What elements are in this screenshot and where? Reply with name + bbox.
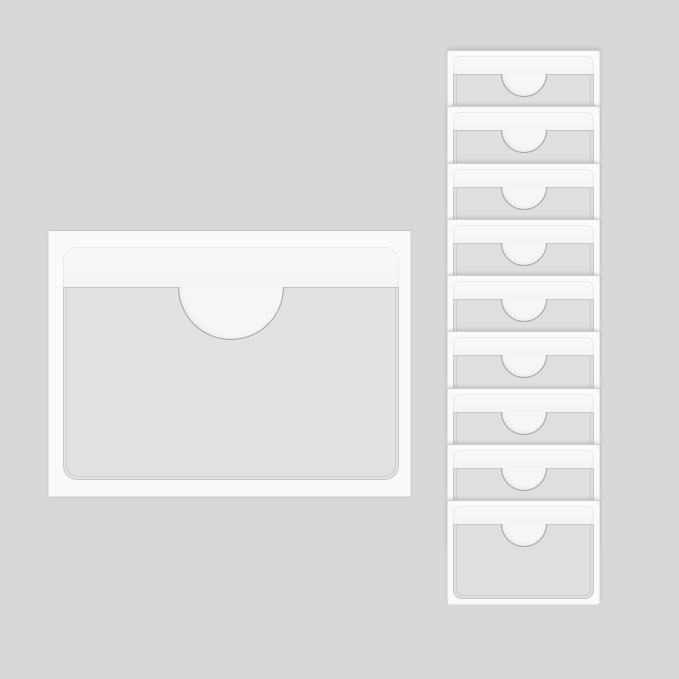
small-pocket-adhesive-band (453, 394, 594, 412)
small-pocket-adhesive-band (453, 506, 594, 524)
pocket-stack (447, 50, 600, 605)
small-pocket-adhesive-band (453, 337, 594, 355)
large-pocket-front-panel (63, 287, 399, 480)
small-pocket-adhesive-band (453, 112, 594, 130)
small-pocket-adhesive-band (453, 281, 594, 299)
large-pocket-backing-sheet (48, 230, 411, 497)
thumb-notch (501, 74, 547, 97)
thumb-notch (501, 299, 547, 322)
thumb-notch (501, 355, 547, 378)
thumb-notch (501, 243, 547, 266)
small-pocket-adhesive-band (453, 56, 594, 74)
large-pocket-adhesive-band (63, 247, 399, 287)
thumb-notch (501, 412, 547, 435)
small-pocket-backing-sheet (447, 500, 600, 605)
thumb-notch (501, 524, 547, 547)
small-pocket-adhesive-band (453, 450, 594, 468)
thumb-notch (501, 130, 547, 153)
small-pocket-front-panel (453, 524, 594, 599)
small-pocket-adhesive-band (453, 169, 594, 187)
product-image (0, 0, 679, 679)
thumb-notch (501, 468, 547, 491)
thumb-notch (178, 287, 284, 340)
thumb-notch (501, 187, 547, 210)
large-pocket (63, 247, 399, 480)
small-pocket-adhesive-band (453, 225, 594, 243)
